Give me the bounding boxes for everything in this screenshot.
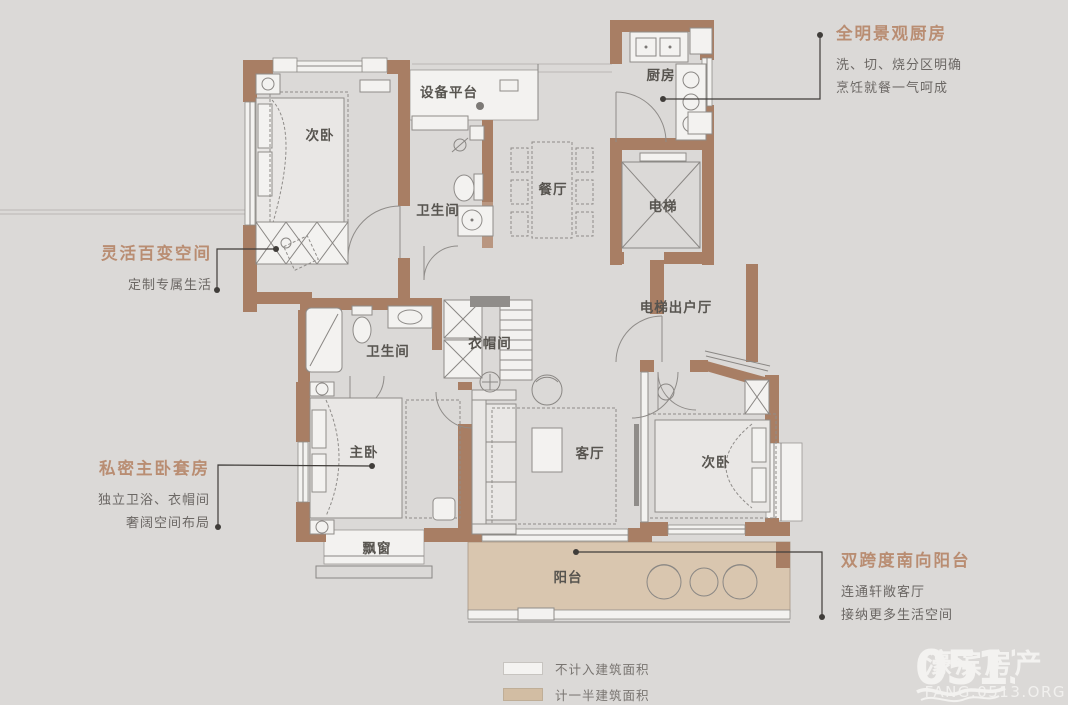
annotation-kitchen-line1: 洗、切、烧分区明确 bbox=[836, 54, 962, 77]
wardrobe-top-left bbox=[256, 222, 348, 264]
watermark: 0513 濠滨房产 FANG.0513.ORG bbox=[915, 642, 1066, 701]
floorplan-page: 次卧设备平台卫生间餐厅厨房电梯电梯出户厅卫生间衣帽间主卧客厅次卧飘窗阳台 全明景… bbox=[0, 0, 1068, 705]
room-label-elevator: 电梯 bbox=[649, 198, 678, 215]
legend-swatch-half-counted bbox=[503, 688, 543, 701]
annotation-master-suite: 私密主卧套房 独立卫浴、衣帽间 奢阔空间布局 bbox=[96, 455, 210, 535]
equipment-units-roof bbox=[360, 80, 390, 92]
annotation-kitchen: 全明景观厨房 洗、切、烧分区明确 烹饪就餐一气呵成 bbox=[836, 20, 962, 100]
annotation-balcony-line1: 连通轩敞客厅 bbox=[841, 581, 971, 604]
room-label-living-room: 客厅 bbox=[575, 445, 605, 462]
room-label-bay-window: 飘窗 bbox=[363, 540, 392, 557]
annotation-kitchen-title: 全明景观厨房 bbox=[836, 20, 962, 44]
bay-window-bedroom-br bbox=[766, 443, 802, 521]
room-label-dining-room: 餐厅 bbox=[538, 181, 568, 198]
legend-swatch-not-counted bbox=[503, 662, 543, 675]
watermark-logo: 0513 bbox=[915, 642, 1015, 705]
room-label-equipment-platform: 设备平台 bbox=[420, 84, 478, 101]
balcony-area bbox=[468, 542, 790, 622]
legend-item-half-counted: 计一半建筑面积 bbox=[503, 685, 650, 704]
legend-label-not-counted: 不计入建筑面积 bbox=[555, 659, 650, 678]
watermark-logo-text: 0513 bbox=[915, 642, 1015, 696]
annotation-kitchen-line2: 烹饪就餐一气呵成 bbox=[836, 77, 962, 100]
annotation-master-title: 私密主卧套房 bbox=[96, 455, 210, 479]
room-label-elevator-lobby: 电梯出户厅 bbox=[640, 299, 713, 316]
legend-label-half-counted: 计一半建筑面积 bbox=[555, 685, 650, 704]
kitchen-fixtures bbox=[630, 28, 712, 140]
room-label-cloakroom: 衣帽间 bbox=[468, 335, 512, 352]
room-label-bedroom-bottom-right: 次卧 bbox=[702, 454, 731, 471]
annotation-balcony: 双跨度南向阳台 连通轩敞客厅 接纳更多生活空间 bbox=[841, 547, 971, 627]
room-label-bedroom-top-left: 次卧 bbox=[306, 127, 335, 144]
annotation-master-line1: 独立卫浴、衣帽间 bbox=[96, 489, 210, 512]
room-label-master-bedroom: 主卧 bbox=[350, 444, 379, 461]
bedroom-br-furniture bbox=[648, 380, 776, 518]
annotation-flex-space: 灵活百变空间 定制专属生活 bbox=[96, 240, 212, 297]
annotation-flex-line1: 定制专属生活 bbox=[96, 274, 212, 297]
room-label-bathroom-top: 卫生间 bbox=[416, 202, 460, 219]
room-label-bathroom-middle: 卫生间 bbox=[366, 343, 410, 360]
annotation-balcony-line2: 接纳更多生活空间 bbox=[841, 604, 971, 627]
annotation-master-line2: 奢阔空间布局 bbox=[96, 512, 210, 535]
bathroom-middle-fixtures bbox=[306, 306, 432, 372]
annotation-flex-title: 灵活百变空间 bbox=[96, 240, 212, 264]
room-label-balcony: 阳台 bbox=[554, 569, 583, 586]
legend: 不计入建筑面积 计一半建筑面积 bbox=[503, 659, 650, 705]
bed-top-left bbox=[256, 74, 348, 234]
legend-item-not-counted: 不计入建筑面积 bbox=[503, 659, 650, 678]
living-room-furniture bbox=[472, 372, 639, 534]
annotation-balcony-title: 双跨度南向阳台 bbox=[841, 547, 971, 571]
room-label-kitchen: 厨房 bbox=[647, 67, 676, 84]
master-bed bbox=[310, 382, 460, 534]
